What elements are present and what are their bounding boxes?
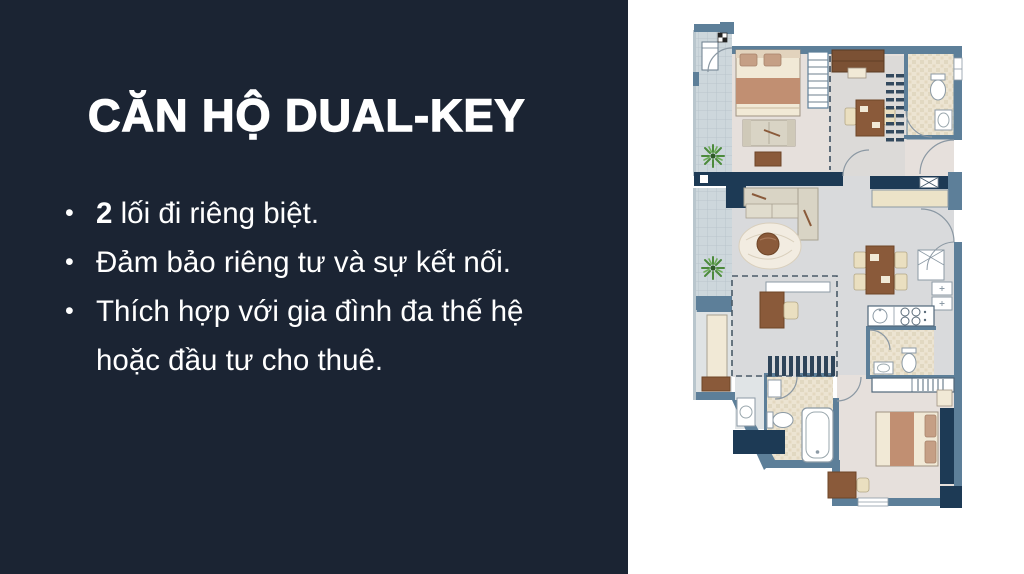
plant-icon: [702, 145, 724, 167]
shaft-icon: [920, 178, 938, 188]
feature-3-text: Thích hợp với gia đình đa thế hệ hoặc đầ…: [96, 295, 523, 377]
bullet-icon: •: [65, 189, 74, 238]
ladder: [808, 52, 828, 108]
ac-unit-icon: [718, 33, 727, 42]
floorplan-image: [680, 20, 980, 510]
feature-1-bold: 2: [96, 197, 112, 230]
sofa-1: [743, 120, 795, 146]
slide: CĂN HỘ DUAL-KEY •2 lối đi riêng biệt. •Đ…: [0, 0, 1024, 574]
bed-1: [736, 50, 800, 116]
bathtub: [802, 408, 833, 462]
feature-2-text: Đảm bảo riêng tư và sự kết nối.: [96, 246, 511, 279]
bullet-icon: •: [65, 287, 74, 336]
bullet-icon: •: [65, 238, 74, 287]
feature-item-2: •Đảm bảo riêng tư và sự kết nối.: [63, 238, 546, 287]
feature-item-3: •Thích hợp với gia đình đa thế hệ hoặc đ…: [63, 287, 546, 385]
ottoman: [757, 233, 779, 255]
intro-panel: CĂN HỘ DUAL-KEY •2 lối đi riêng biệt. •Đ…: [0, 0, 628, 574]
plant-icon: [702, 257, 724, 279]
feature-list: •2 lối đi riêng biệt. •Đảm bảo riêng tư …: [63, 189, 546, 385]
feature-item-1: •2 lối đi riêng biệt.: [63, 189, 546, 238]
coffee-table-1: [755, 152, 781, 166]
feature-1-text: lối đi riêng biệt.: [112, 197, 319, 230]
slide-title: CĂN HỘ DUAL-KEY: [88, 90, 526, 142]
bedroom-window: [858, 498, 888, 506]
washer: [737, 398, 755, 426]
floorplan-panel: [680, 20, 980, 510]
balconies: [693, 22, 736, 400]
